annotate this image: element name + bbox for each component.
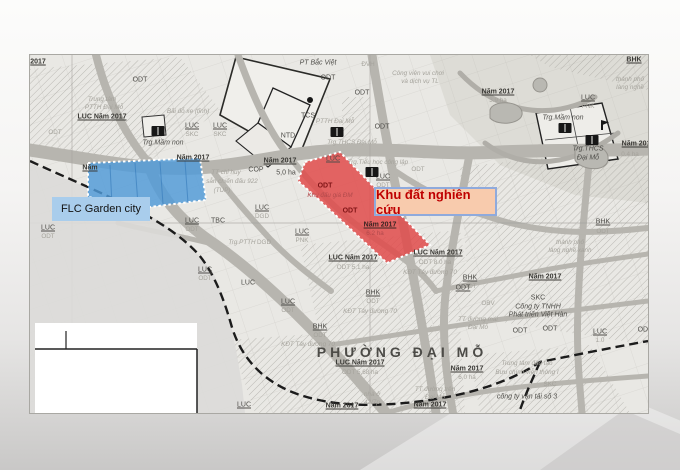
map-label: Năm 2017 [482, 89, 515, 96]
map-label: LUC Năm 2017 [77, 114, 126, 121]
map-label: BHK [313, 324, 327, 331]
map-label: LUC [255, 205, 269, 212]
map-label: LUC [41, 225, 55, 232]
zoning-map: 2017ODTODTTrung tâmPTTH Đại MỗLUC Năm 20… [30, 55, 648, 413]
map-label: Năm 2017 [364, 222, 397, 229]
map-label: LUC [213, 123, 227, 130]
map-label: LUC [241, 280, 255, 287]
book-icon [586, 135, 599, 145]
map-label: sẵn chiến đấu 922 [206, 179, 257, 185]
map-label: Khu đấu giá ĐM [307, 193, 352, 199]
map-label: 2017 [30, 59, 46, 66]
map-label: Trung tâm [88, 97, 116, 103]
map-label: ODT [133, 77, 148, 84]
map-label: BHK [366, 290, 380, 297]
white-sheet-corner [35, 323, 197, 413]
map-label: SKC [544, 382, 557, 388]
map-label: ODT [321, 75, 336, 82]
map-label: BHK [463, 275, 477, 282]
map-label: Công viên vui chơi [392, 71, 444, 77]
map-label: ODT 5,1 ha [337, 265, 369, 271]
map-label: Trg.Tiểu học công lập [348, 160, 408, 166]
map-label: TT đường mái [458, 317, 498, 323]
map-label: TBC [211, 218, 225, 225]
map-label: ODT [318, 183, 333, 190]
map-label: 1.0 [596, 338, 605, 344]
flc-garden-city-label: FLC Garden city [52, 197, 150, 221]
research-area-label-text: Khu đất nghiên cứu [376, 187, 495, 217]
map-label: Trung tâm đào tạo [502, 361, 553, 367]
map-label: Công ty TNHH [515, 304, 561, 311]
map-label: 42/7p [364, 400, 380, 406]
book-icon [366, 167, 379, 177]
map-label: ODT [198, 276, 211, 282]
map-label: SKC [186, 132, 199, 138]
map-label: LUC [326, 156, 340, 163]
map-label: công ty vận tải số 3 [497, 394, 557, 401]
map-label: Năm [82, 165, 97, 172]
map-label: ODT [48, 130, 61, 136]
map-label: ODT [638, 327, 648, 334]
map-label: Phát triển Việt Hàn [509, 312, 568, 319]
slide-background: 2017ODTODTTrung tâmPTTH Đại MỗLUC Năm 20… [0, 0, 680, 470]
map-label: LUC [581, 95, 595, 102]
map-label: (TUP) [214, 188, 231, 194]
map-label: ODT [456, 285, 471, 292]
map-label: Trg.THCS Đại Mỗ [327, 140, 377, 146]
flc-garden-city-label-text: FLC Garden city [61, 203, 141, 215]
map-label: SKC [214, 132, 227, 138]
map-label: 6.2 ha [366, 231, 384, 237]
map-label: Trg.PTTH [228, 240, 255, 246]
map-label: LUC Năm 2017 [328, 255, 377, 262]
map-label: PHƯỜNG ĐẠI MỖ [317, 345, 487, 359]
map-label: Đại Mỗ [425, 395, 445, 401]
map-label: Trg.Mầm non [142, 140, 183, 147]
map-label: ODT [185, 227, 198, 233]
map-label: COP [248, 167, 263, 174]
map-label: ODT [513, 328, 528, 335]
map-label: LUC [185, 123, 199, 130]
map-label: LUC Năm 2017 [335, 360, 384, 367]
map-label: Năm 2017 [414, 402, 447, 409]
map-label: KĐT Tây đường 70 [343, 309, 397, 315]
map-label: Năm 2017 [264, 158, 297, 165]
map-label: DGD [255, 214, 269, 220]
map-label: 0.4 ha [621, 152, 639, 158]
map-label: KĐT Tây đường 70 [403, 270, 457, 276]
map-label: Năm 2017 [177, 155, 210, 162]
map-label: ODT [355, 90, 370, 97]
map-label: ODT [596, 229, 609, 235]
map-label: LUC Năm 2017 [413, 250, 462, 257]
map-label: 3.9 ha [489, 98, 507, 104]
map-label: NTD [281, 133, 295, 140]
map-label: nhà ở [364, 392, 380, 398]
map-label: ODT [366, 299, 379, 305]
map-label: ĐVH [361, 62, 374, 68]
map-label: ODT 5,68 ha [342, 370, 378, 376]
map-label: thành phố [556, 240, 584, 246]
map-label: Trg.THCS [573, 146, 604, 153]
dot-icon [307, 97, 313, 103]
map-label: LUC [198, 267, 212, 274]
map-label: Năm 2017 [529, 274, 562, 281]
map-label: 5,0 ha [276, 170, 295, 177]
book-icon [152, 126, 165, 136]
map-label: Năm 2017 [451, 366, 484, 373]
map-label: làng nghề [616, 85, 644, 91]
map-label: BHK [596, 219, 610, 226]
map-label: ODT [281, 308, 294, 314]
map-label: PNK [582, 104, 595, 110]
map-label: ODT [41, 234, 54, 240]
map-label: Năm 2017 [622, 141, 648, 148]
map-label: LUC [281, 299, 295, 306]
map-label: LUC [237, 402, 251, 409]
map-label: Bãi đỗ xe (tĩnh) [167, 109, 209, 115]
map-label: SKC [531, 295, 545, 302]
map-label: BHK [626, 57, 641, 64]
map-label: ODT 8.0 ha [419, 260, 451, 266]
book-icon [559, 123, 572, 133]
map-label: ODT [411, 167, 424, 173]
map-label: Đại Mỗ [577, 155, 599, 162]
map-label: PNK [296, 238, 309, 244]
map-label: Trg.Mầm non [542, 115, 583, 122]
map-label: ODT [543, 326, 558, 333]
map-label: ODT [343, 208, 358, 215]
research-area-label: Khu đất nghiên cứu [374, 187, 497, 216]
map-label: PTTH Đại Mỗ [85, 105, 123, 111]
map-label: ODT [375, 124, 390, 131]
map-label: làng nghề xanh [548, 248, 591, 254]
map-label: LUC [185, 218, 199, 225]
map-label: PTTH Đại Mỗ [316, 119, 354, 125]
map-label: TT đường trên [415, 387, 455, 393]
map-label: LUC [593, 329, 607, 336]
map-label: thành phố [616, 77, 644, 83]
map-label: TT chỉ huy [211, 170, 240, 176]
map-label: DGD [257, 240, 271, 246]
map-label: LUC [295, 229, 309, 236]
map-label: 6.0 ha [458, 375, 476, 381]
map-label: và dịch vụ TL [401, 79, 438, 85]
map-label: OBV [481, 301, 494, 307]
map-label: PT Bắc Việt [300, 60, 337, 67]
map-label: Bưu chính viễn thông I [495, 370, 558, 376]
map-label: Năm 2017 [326, 403, 359, 410]
book-icon [331, 127, 344, 137]
map-label: ODT [313, 333, 326, 339]
map-label: Đại Mỗ [468, 325, 488, 331]
map-label: TCS [301, 113, 315, 120]
